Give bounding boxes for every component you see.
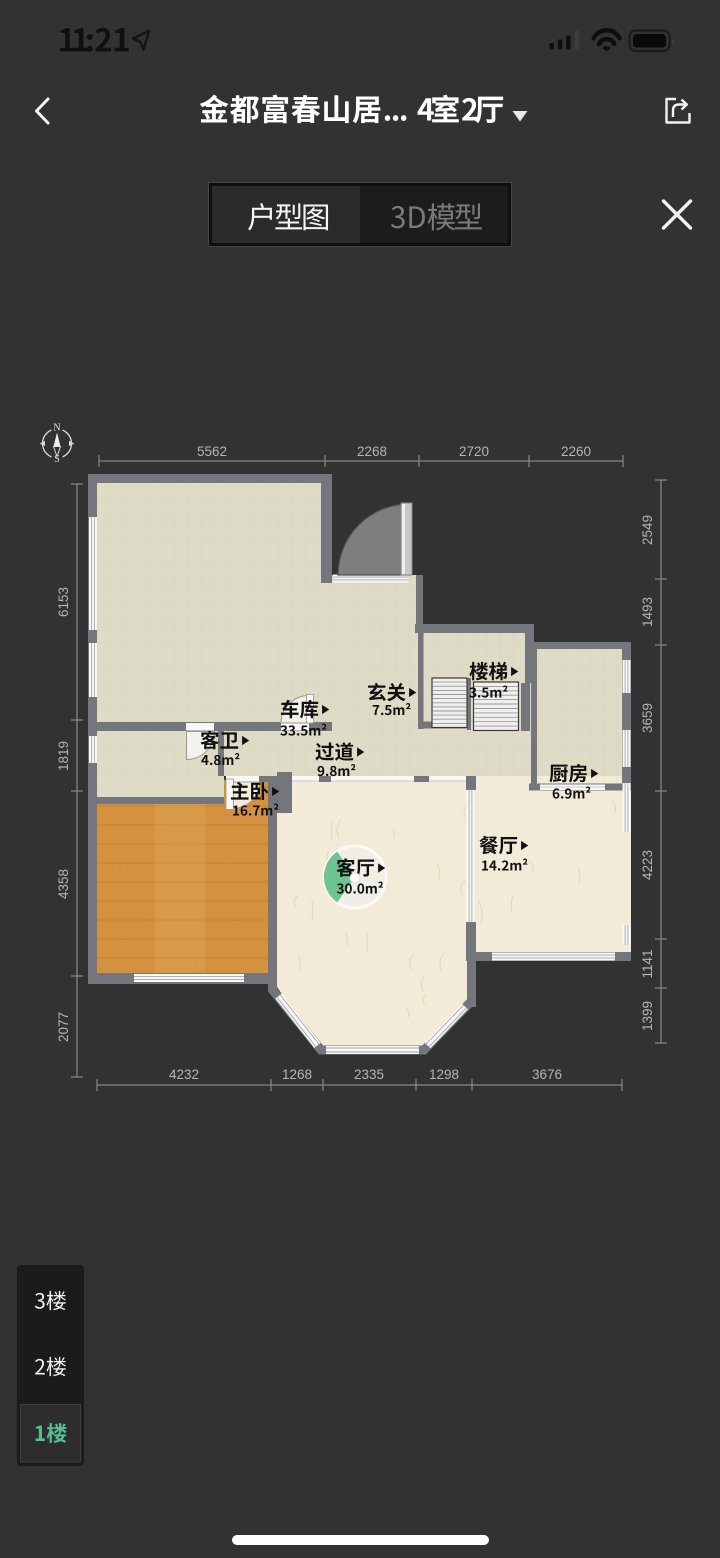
svg-text:4358: 4358 [56, 869, 71, 899]
svg-text:2268: 2268 [357, 444, 387, 459]
svg-text:2260: 2260 [561, 444, 591, 459]
svg-text:1399: 1399 [640, 1001, 655, 1031]
svg-text:3676: 3676 [532, 1067, 562, 1082]
svg-text:1141: 1141 [640, 949, 655, 978]
svg-text:S: S [54, 454, 60, 465]
svg-text:2720: 2720 [459, 444, 489, 459]
svg-text:N: N [53, 423, 60, 434]
svg-text:1268: 1268 [282, 1067, 312, 1082]
svg-text:4223: 4223 [640, 850, 655, 880]
svg-text:1819: 1819 [56, 741, 71, 771]
svg-text:2335: 2335 [354, 1067, 384, 1082]
svg-text:1493: 1493 [640, 597, 655, 627]
svg-text:5562: 5562 [197, 444, 227, 459]
svg-text:2077: 2077 [56, 1012, 71, 1042]
svg-text:2549: 2549 [640, 515, 655, 545]
svg-text:1298: 1298 [429, 1067, 459, 1082]
svg-text:4232: 4232 [169, 1067, 199, 1082]
svg-text:6153: 6153 [56, 587, 71, 617]
svg-text:3659: 3659 [640, 703, 655, 733]
